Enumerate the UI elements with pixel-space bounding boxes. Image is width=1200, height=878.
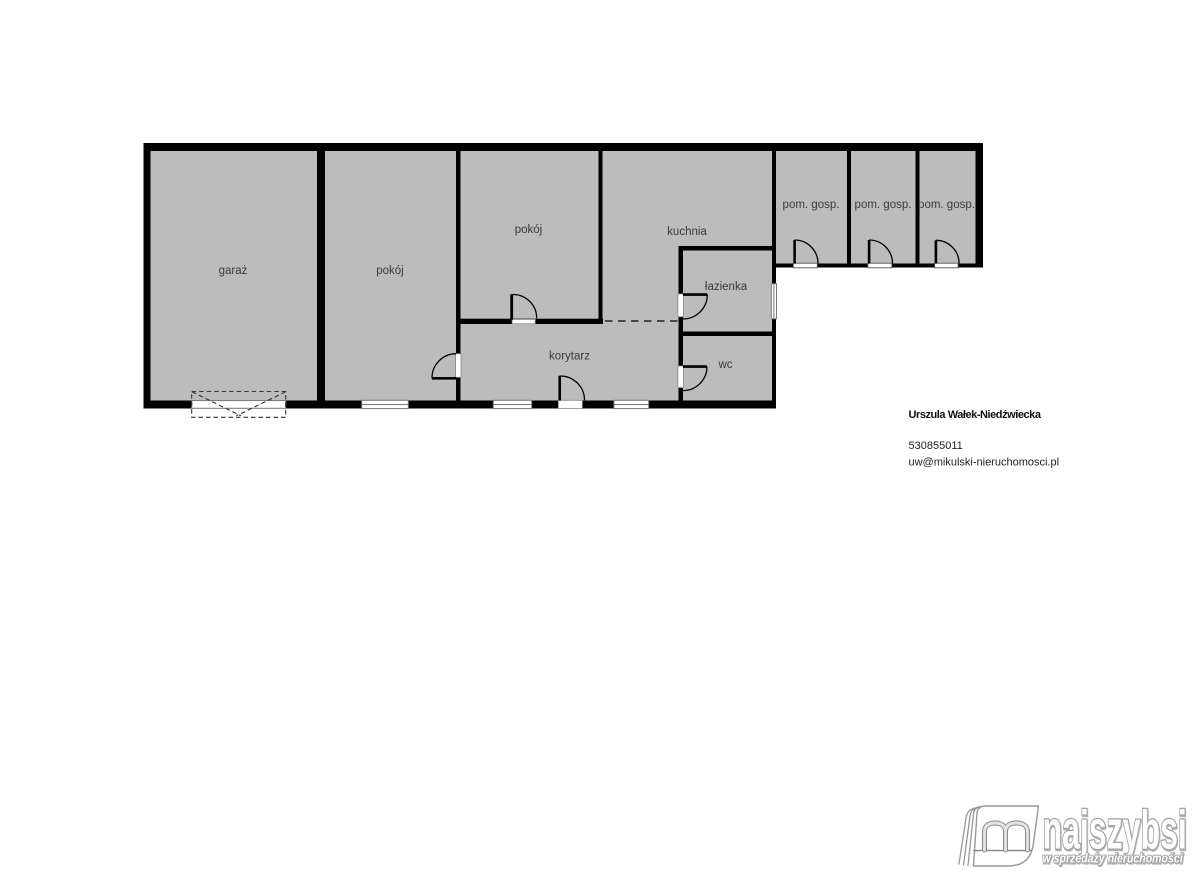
svg-text:Urszula Wałek-Niedźwiecka: Urszula Wałek-Niedźwiecka [909,409,1042,421]
svg-text:pom. gosp.: pom. gosp. [783,199,840,211]
svg-text:wc: wc [717,359,732,371]
svg-text:pom. gosp.: pom. gosp. [855,199,912,211]
svg-text:uw@mikulski-nieruchomosci.pl: uw@mikulski-nieruchomosci.pl [909,457,1060,469]
svg-text:łazienka: łazienka [705,281,748,293]
svg-text:pokój: pokój [515,224,543,236]
svg-text:kuchnia: kuchnia [667,226,707,238]
svg-text:pokój: pokój [376,265,404,277]
svg-text:w sprzedaży nieruchomości: w sprzedaży nieruchomości [1043,850,1184,865]
svg-text:530855011: 530855011 [909,440,963,452]
svg-text:pom. gosp.: pom. gosp. [918,199,975,211]
svg-text:garaż: garaż [219,265,248,277]
svg-text:korytarz: korytarz [549,351,590,363]
